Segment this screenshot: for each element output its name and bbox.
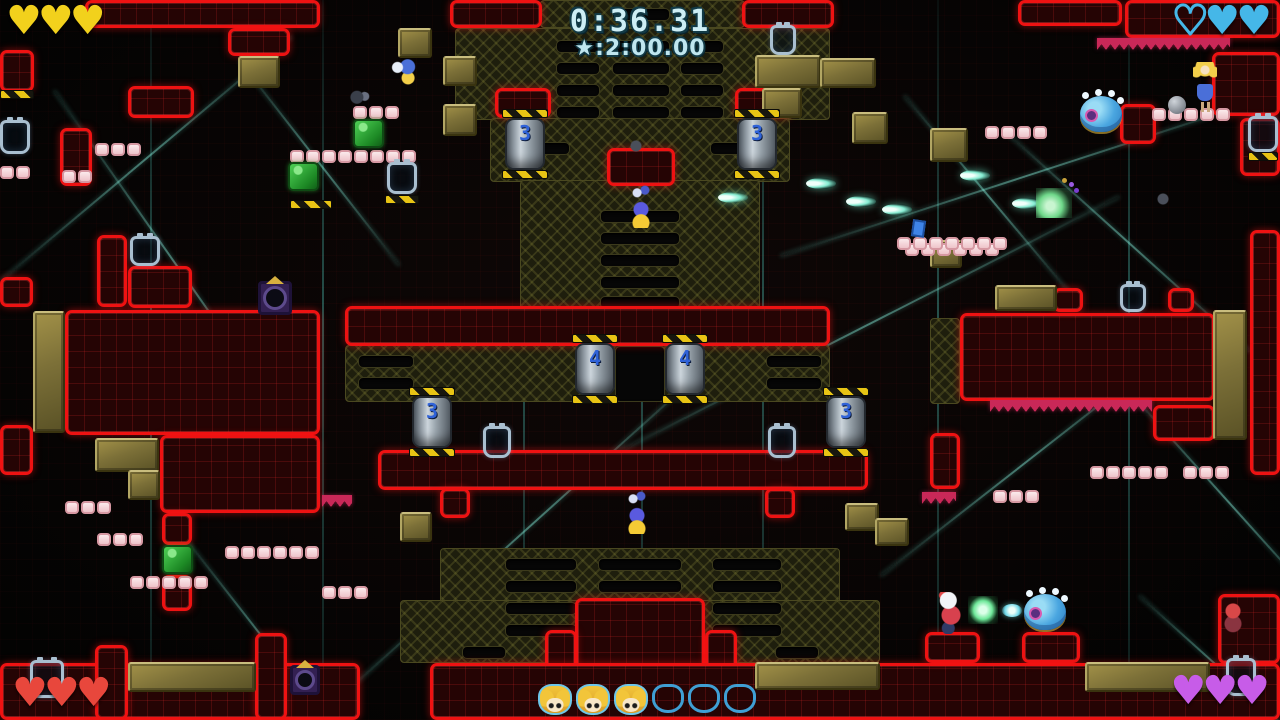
tile-block [129, 533, 143, 546]
hazard-stripe [734, 170, 780, 179]
comet-sprite [806, 178, 836, 189]
heart-full-icon: ♥ [6, 2, 42, 40]
tile-block [273, 546, 287, 559]
hazard-stripe [734, 109, 780, 118]
vent-slot [600, 254, 680, 267]
comet-sprite [882, 204, 912, 215]
rescue-counter [536, 684, 758, 715]
heart-full-icon: ♥ [1170, 672, 1206, 710]
armor-block [820, 58, 876, 88]
heart-full-icon: ♥ [44, 674, 80, 712]
containment-box [1120, 284, 1146, 312]
barrier-block [1212, 52, 1280, 116]
barrier-block [765, 488, 795, 518]
tile-block [1154, 466, 1168, 479]
orb-sprite [1002, 604, 1022, 617]
tile-block [1152, 108, 1166, 121]
vent-slot [775, 646, 819, 659]
number-pillar: 3 [737, 118, 777, 170]
armor-block [852, 112, 888, 144]
tile-block [1001, 126, 1015, 139]
barrier-block [1022, 632, 1080, 663]
tile-block [913, 237, 927, 250]
vent-slot [766, 377, 822, 390]
vent-slot [680, 84, 724, 97]
vent-slot [358, 355, 414, 368]
heart-full-icon: ♥ [1202, 672, 1238, 710]
hazard-stripe [385, 195, 419, 204]
tile-block [81, 501, 95, 514]
armor-block [128, 470, 160, 500]
vent-slot [556, 106, 600, 119]
containment-box [483, 426, 511, 458]
tile-block [897, 237, 911, 250]
armor-block [443, 104, 477, 136]
sprite-dark-sprite [628, 140, 644, 152]
tile-block [369, 106, 383, 119]
barrier-block [1250, 230, 1280, 475]
hazard-stripe [823, 448, 869, 457]
tile-block [225, 546, 239, 559]
timer: 0:36.31 ★:2:00.00 [0, 4, 1280, 61]
tile-block [1033, 126, 1047, 139]
armor-block [95, 438, 159, 472]
hull-panel [930, 318, 960, 404]
vent-slot [358, 377, 414, 390]
tile-block [1122, 466, 1136, 479]
armor-block [128, 662, 256, 692]
switch-block [162, 545, 193, 574]
hazard-stripe [502, 109, 548, 118]
heart-full-icon: ♥ [38, 2, 74, 40]
barrier-block [1168, 288, 1194, 312]
containment-box [768, 426, 796, 458]
number-pillar: 4 [665, 343, 705, 395]
tile-block [130, 576, 144, 589]
tile-block [385, 106, 399, 119]
containment-box [130, 236, 160, 266]
heart-full-icon: ♥ [1234, 672, 1270, 710]
tile-block [1215, 466, 1229, 479]
vent-slot [766, 355, 822, 368]
vent-slot [612, 84, 670, 97]
barrier-block [97, 235, 127, 307]
vent-slot [598, 558, 682, 571]
barrier-block [162, 513, 192, 545]
barrier-block [255, 633, 287, 720]
barrier-block [930, 433, 960, 489]
hazard-stripe [0, 90, 34, 99]
tile-block [338, 150, 352, 163]
vent-slot [505, 580, 577, 593]
launcher-block [290, 665, 320, 695]
containment-box [0, 120, 30, 154]
comet-sprite [846, 196, 876, 207]
tile-block [289, 546, 303, 559]
comet-sprite [718, 192, 748, 203]
rescued-hostage-icon [538, 684, 572, 715]
tile-block [993, 237, 1007, 250]
hostage-sprite [1193, 62, 1217, 112]
green-burst-sprite [1036, 188, 1072, 218]
tile-block [162, 576, 176, 589]
enemy-dark-sprite [346, 87, 372, 110]
heart-full-icon: ♥ [76, 674, 112, 712]
tile-block [1216, 108, 1230, 121]
hazard-stripe [409, 387, 455, 396]
tile-block [1025, 490, 1039, 503]
hazard-stripe [662, 395, 708, 404]
heart-full-icon: ♥ [1204, 2, 1240, 40]
tile-block [338, 586, 352, 599]
tile-block [16, 166, 30, 179]
barrier-block [607, 148, 675, 186]
hazard-stripe [572, 334, 618, 343]
armor-block [755, 662, 880, 690]
vent-slot [615, 346, 665, 402]
blob-sprite [1024, 594, 1066, 630]
number-pillar: 3 [826, 396, 866, 448]
tile-block [929, 237, 943, 250]
barrier-block [128, 266, 192, 308]
barrier-block [160, 435, 320, 513]
barrier-block [440, 488, 470, 518]
tile-block [1017, 126, 1031, 139]
timer-target: ★:2:00.00 [0, 36, 1280, 61]
number-pillar: 3 [412, 396, 452, 448]
heart-full-icon: ♥ [12, 674, 48, 712]
hazard-stripe [502, 170, 548, 179]
vent-slot [598, 580, 682, 593]
containment-box [1248, 116, 1278, 152]
armor-block [930, 128, 968, 162]
tile-block [127, 143, 141, 156]
vent-slot [612, 62, 670, 75]
game-viewport[interactable]: 334433 0:36.31 ★:2:00.00 ♥♥♥ ♥♥♥ ♥♥♥ ♥♥♥ [0, 0, 1280, 720]
tile-block [1106, 466, 1120, 479]
tile-block [65, 501, 79, 514]
tile-block [370, 150, 384, 163]
number-pillar: 3 [505, 118, 545, 170]
hostage-slot-icon [688, 684, 720, 713]
player3-health-hearts: ♥♥♥ [14, 674, 110, 712]
barrier-block [1120, 104, 1156, 144]
vent-slot [505, 602, 577, 615]
vent-slot [712, 602, 782, 615]
box-blue-sprite [911, 219, 926, 238]
vent-slot [680, 106, 724, 119]
vent-slot [462, 646, 506, 659]
spike-strip [922, 492, 956, 504]
barrier-block [925, 632, 980, 663]
hazard-stripe [1248, 152, 1278, 161]
sprite-dark-sprite [1155, 193, 1171, 205]
tile-block [194, 576, 208, 589]
tile-block [305, 546, 319, 559]
game-level: 334433 [0, 0, 1280, 720]
vent-slot [680, 62, 724, 75]
enemy-red-sprite [1220, 602, 1246, 634]
hazard-stripe [409, 448, 455, 457]
tile-block [178, 576, 192, 589]
armor-block [400, 512, 432, 542]
tile-block [113, 533, 127, 546]
heart-empty-icon: ♥ [1172, 2, 1208, 40]
launcher-block [258, 281, 292, 315]
tile-block [146, 576, 160, 589]
tile-block [95, 143, 109, 156]
tile-block [1138, 466, 1152, 479]
barrier-block [0, 277, 33, 307]
vent-slot [600, 276, 680, 289]
barrier-block [0, 425, 33, 475]
laser-beam [238, 60, 400, 266]
spike-strip [990, 400, 1152, 412]
tile-block [977, 237, 991, 250]
switch-block [353, 119, 384, 148]
barrier-block [1053, 288, 1083, 312]
vent-slot [556, 62, 600, 75]
containment-box [387, 162, 417, 194]
tile-block [111, 143, 125, 156]
girl-hang-sprite [624, 490, 650, 534]
armor-block [995, 285, 1057, 311]
hazard-stripe [823, 387, 869, 396]
tile-block [1009, 490, 1023, 503]
heart-full-icon: ♥ [1236, 2, 1272, 40]
tile-block [0, 166, 14, 179]
tile-block [1090, 466, 1104, 479]
spike-strip [322, 495, 352, 507]
tile-block [961, 237, 975, 250]
armor-block [845, 503, 879, 531]
tile-block [97, 501, 111, 514]
vent-slot [712, 580, 782, 593]
armor-block [33, 311, 65, 433]
vent-slot [505, 558, 577, 571]
tile-block [62, 170, 76, 183]
tile-block [945, 237, 959, 250]
tile-block [1183, 466, 1197, 479]
barrier-block [65, 310, 320, 435]
hostage-slot-icon [724, 684, 756, 713]
tile-block [354, 586, 368, 599]
tile-block [985, 126, 999, 139]
tile-block [993, 490, 1007, 503]
muzzle-sprite [968, 596, 998, 624]
barrier-block [960, 313, 1215, 401]
player4-health-hearts: ♥♥♥ [1172, 672, 1268, 710]
barrier-block [128, 86, 194, 118]
barrier-block [1153, 405, 1215, 441]
rescued-hostage-icon [614, 684, 648, 715]
player1-health-hearts: ♥♥♥ [8, 2, 104, 40]
hostage-slot-icon [652, 684, 684, 713]
blob-sprite [1080, 96, 1122, 132]
tile-block [257, 546, 271, 559]
player-shot-sprite [934, 592, 968, 634]
armor-block [1213, 310, 1247, 440]
vent-slot [712, 558, 782, 571]
rescued-hostage-icon [576, 684, 610, 715]
switch-block [288, 162, 319, 191]
hazard-stripe [572, 395, 618, 404]
tile-block [97, 533, 111, 546]
vertical-laser [322, 0, 324, 720]
timer-current: 0:36.31 [0, 4, 1280, 39]
comet-sprite [960, 170, 990, 181]
heart-full-icon: ♥ [70, 2, 106, 40]
vent-slot [612, 106, 670, 119]
girl-hang-sprite [628, 184, 654, 228]
number-pillar: 4 [575, 343, 615, 395]
tile-block [354, 150, 368, 163]
hazard-stripe [290, 200, 332, 209]
tile-block [322, 150, 336, 163]
tile-block [322, 586, 336, 599]
tile-block [78, 170, 92, 183]
armor-block [875, 518, 909, 546]
hazard-stripe [662, 334, 708, 343]
tile-block [1199, 466, 1213, 479]
tile-block [241, 546, 255, 559]
player2-health-hearts: ♥♥♥ [1174, 2, 1270, 40]
ball-sprite [1168, 96, 1186, 114]
vent-slot [600, 232, 680, 245]
vent-slot [556, 84, 600, 97]
